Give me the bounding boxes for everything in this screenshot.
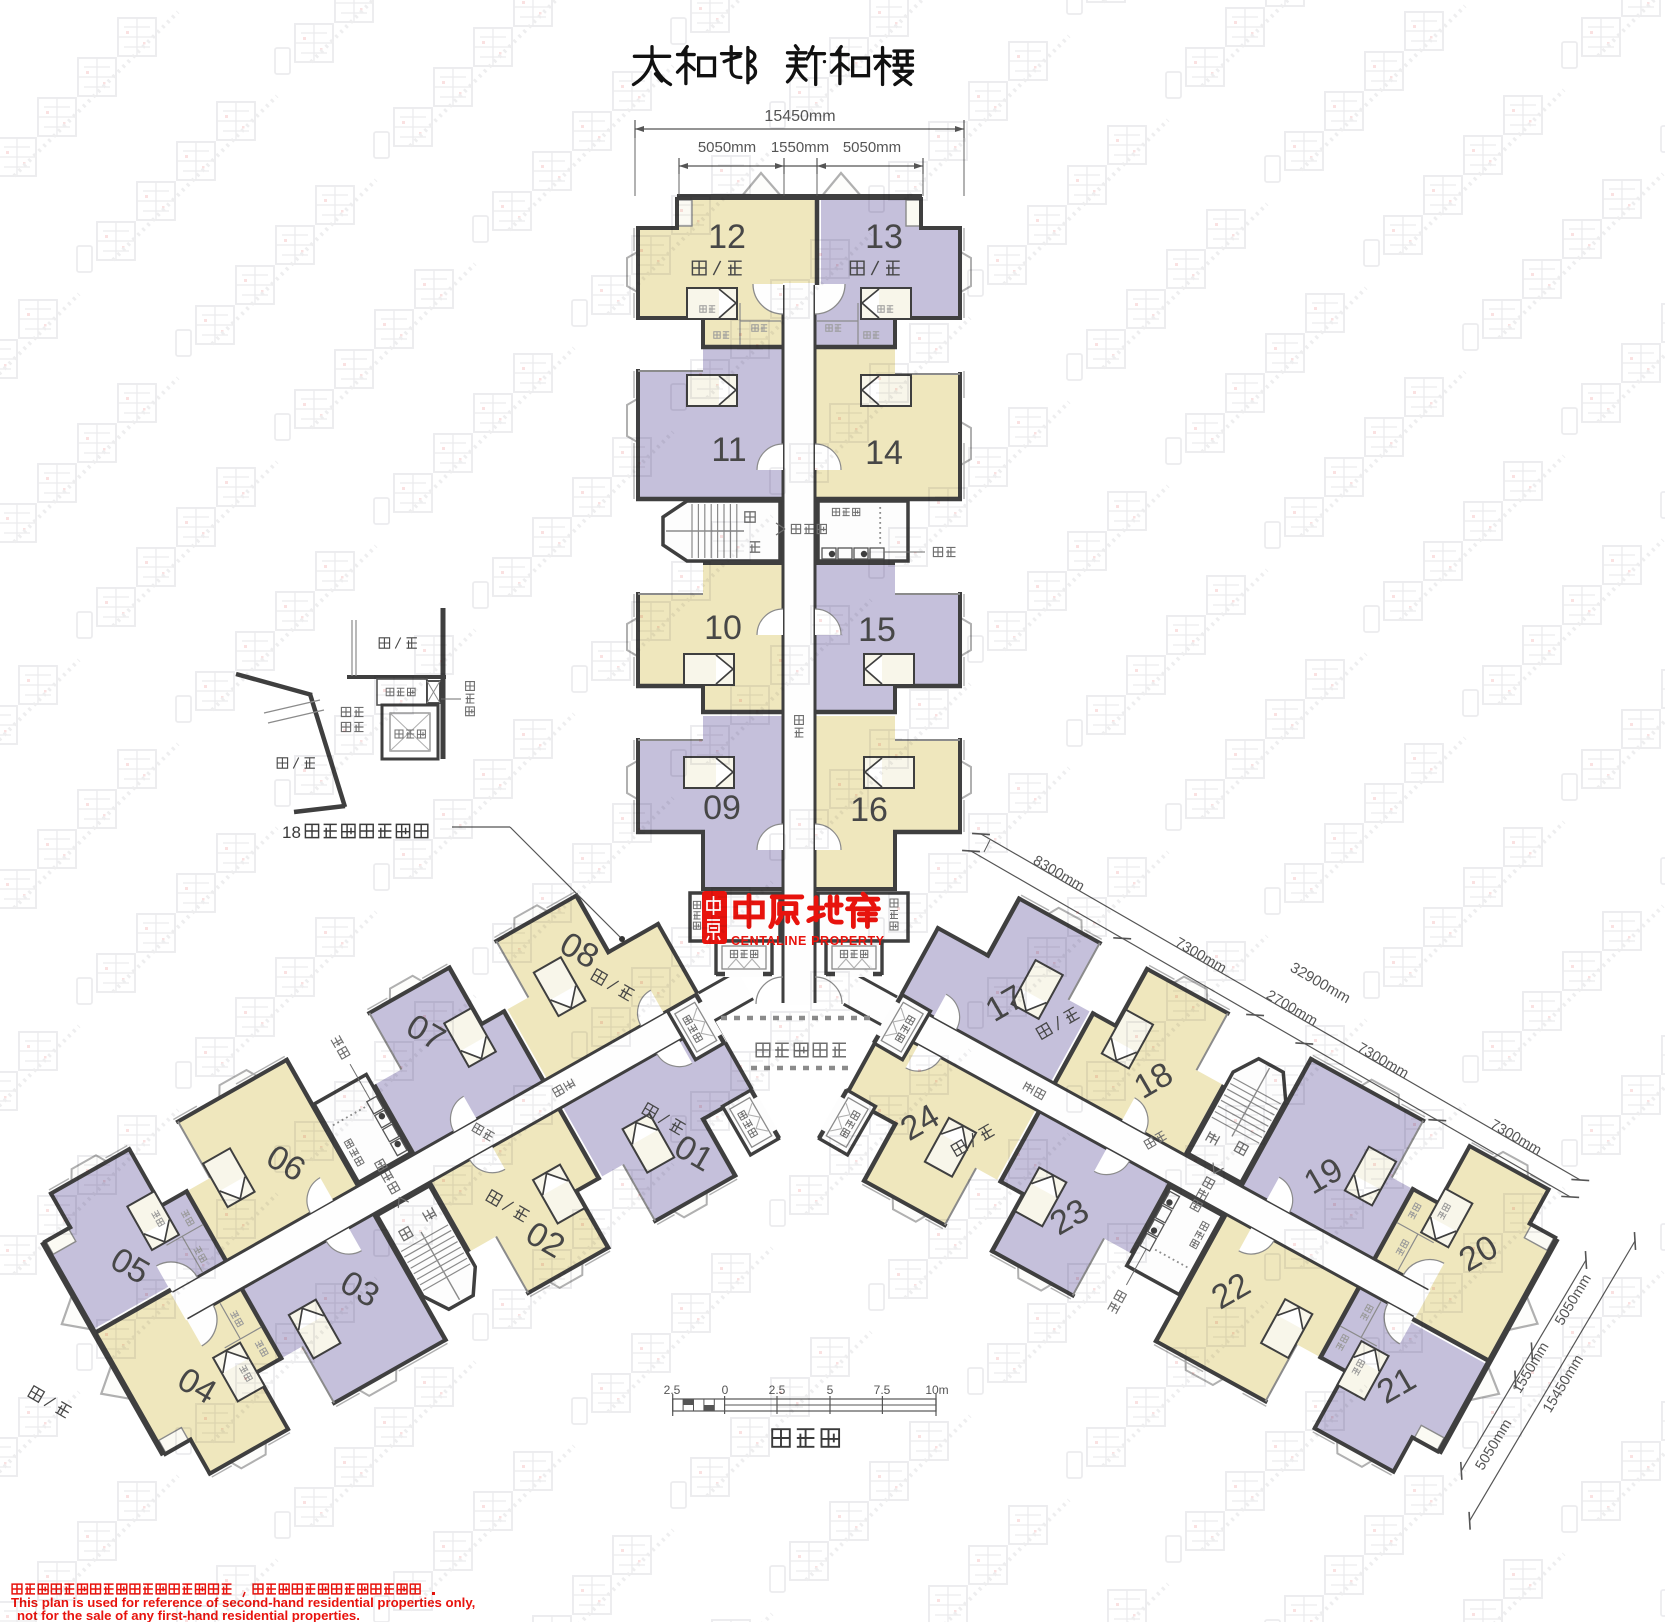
svg-text:11: 11 <box>711 431 746 469</box>
svg-text:10: 10 <box>704 609 742 647</box>
svg-text:0: 0 <box>722 1383 729 1397</box>
svg-text:5050mm: 5050mm <box>698 139 756 156</box>
svg-text:12: 12 <box>708 218 746 256</box>
svg-text:10m: 10m <box>925 1383 948 1397</box>
svg-text:18: 18 <box>282 823 301 842</box>
svg-text:09: 09 <box>703 789 741 827</box>
svg-text:13: 13 <box>865 218 903 256</box>
svg-text:14: 14 <box>865 434 903 472</box>
svg-text:5050mm: 5050mm <box>843 139 901 156</box>
svg-text:1550mm: 1550mm <box>771 139 829 156</box>
svg-text:15: 15 <box>858 611 896 649</box>
svg-text:7.5: 7.5 <box>874 1383 891 1397</box>
svg-text:CENTALINE PROPERTY: CENTALINE PROPERTY <box>731 934 885 948</box>
svg-text:5: 5 <box>827 1383 834 1397</box>
